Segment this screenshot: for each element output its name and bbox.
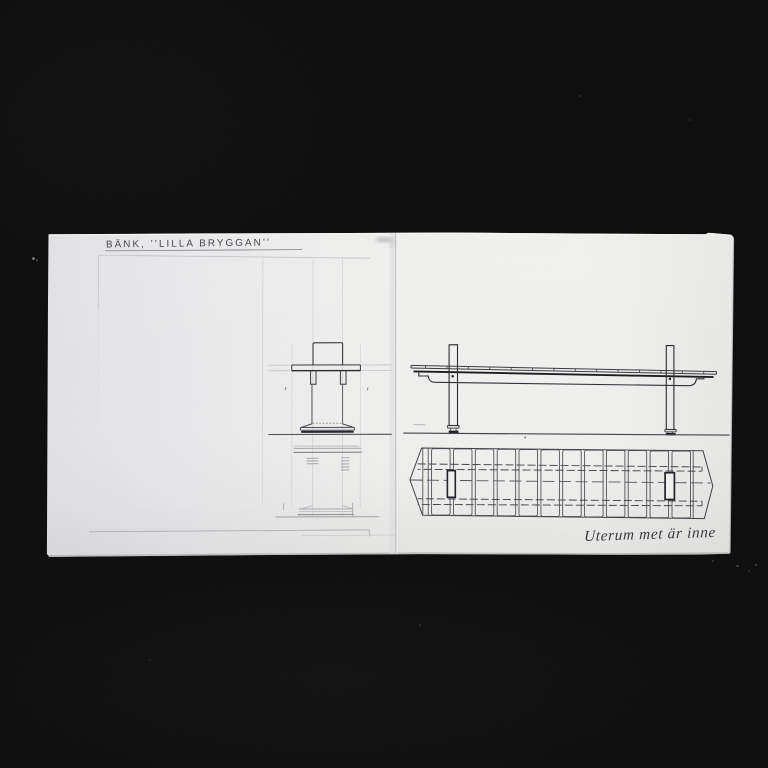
svg-text:BÄNK, ’’LILLA BRYGGAN’’: BÄNK, ’’LILLA BRYGGAN’’ (106, 237, 271, 250)
